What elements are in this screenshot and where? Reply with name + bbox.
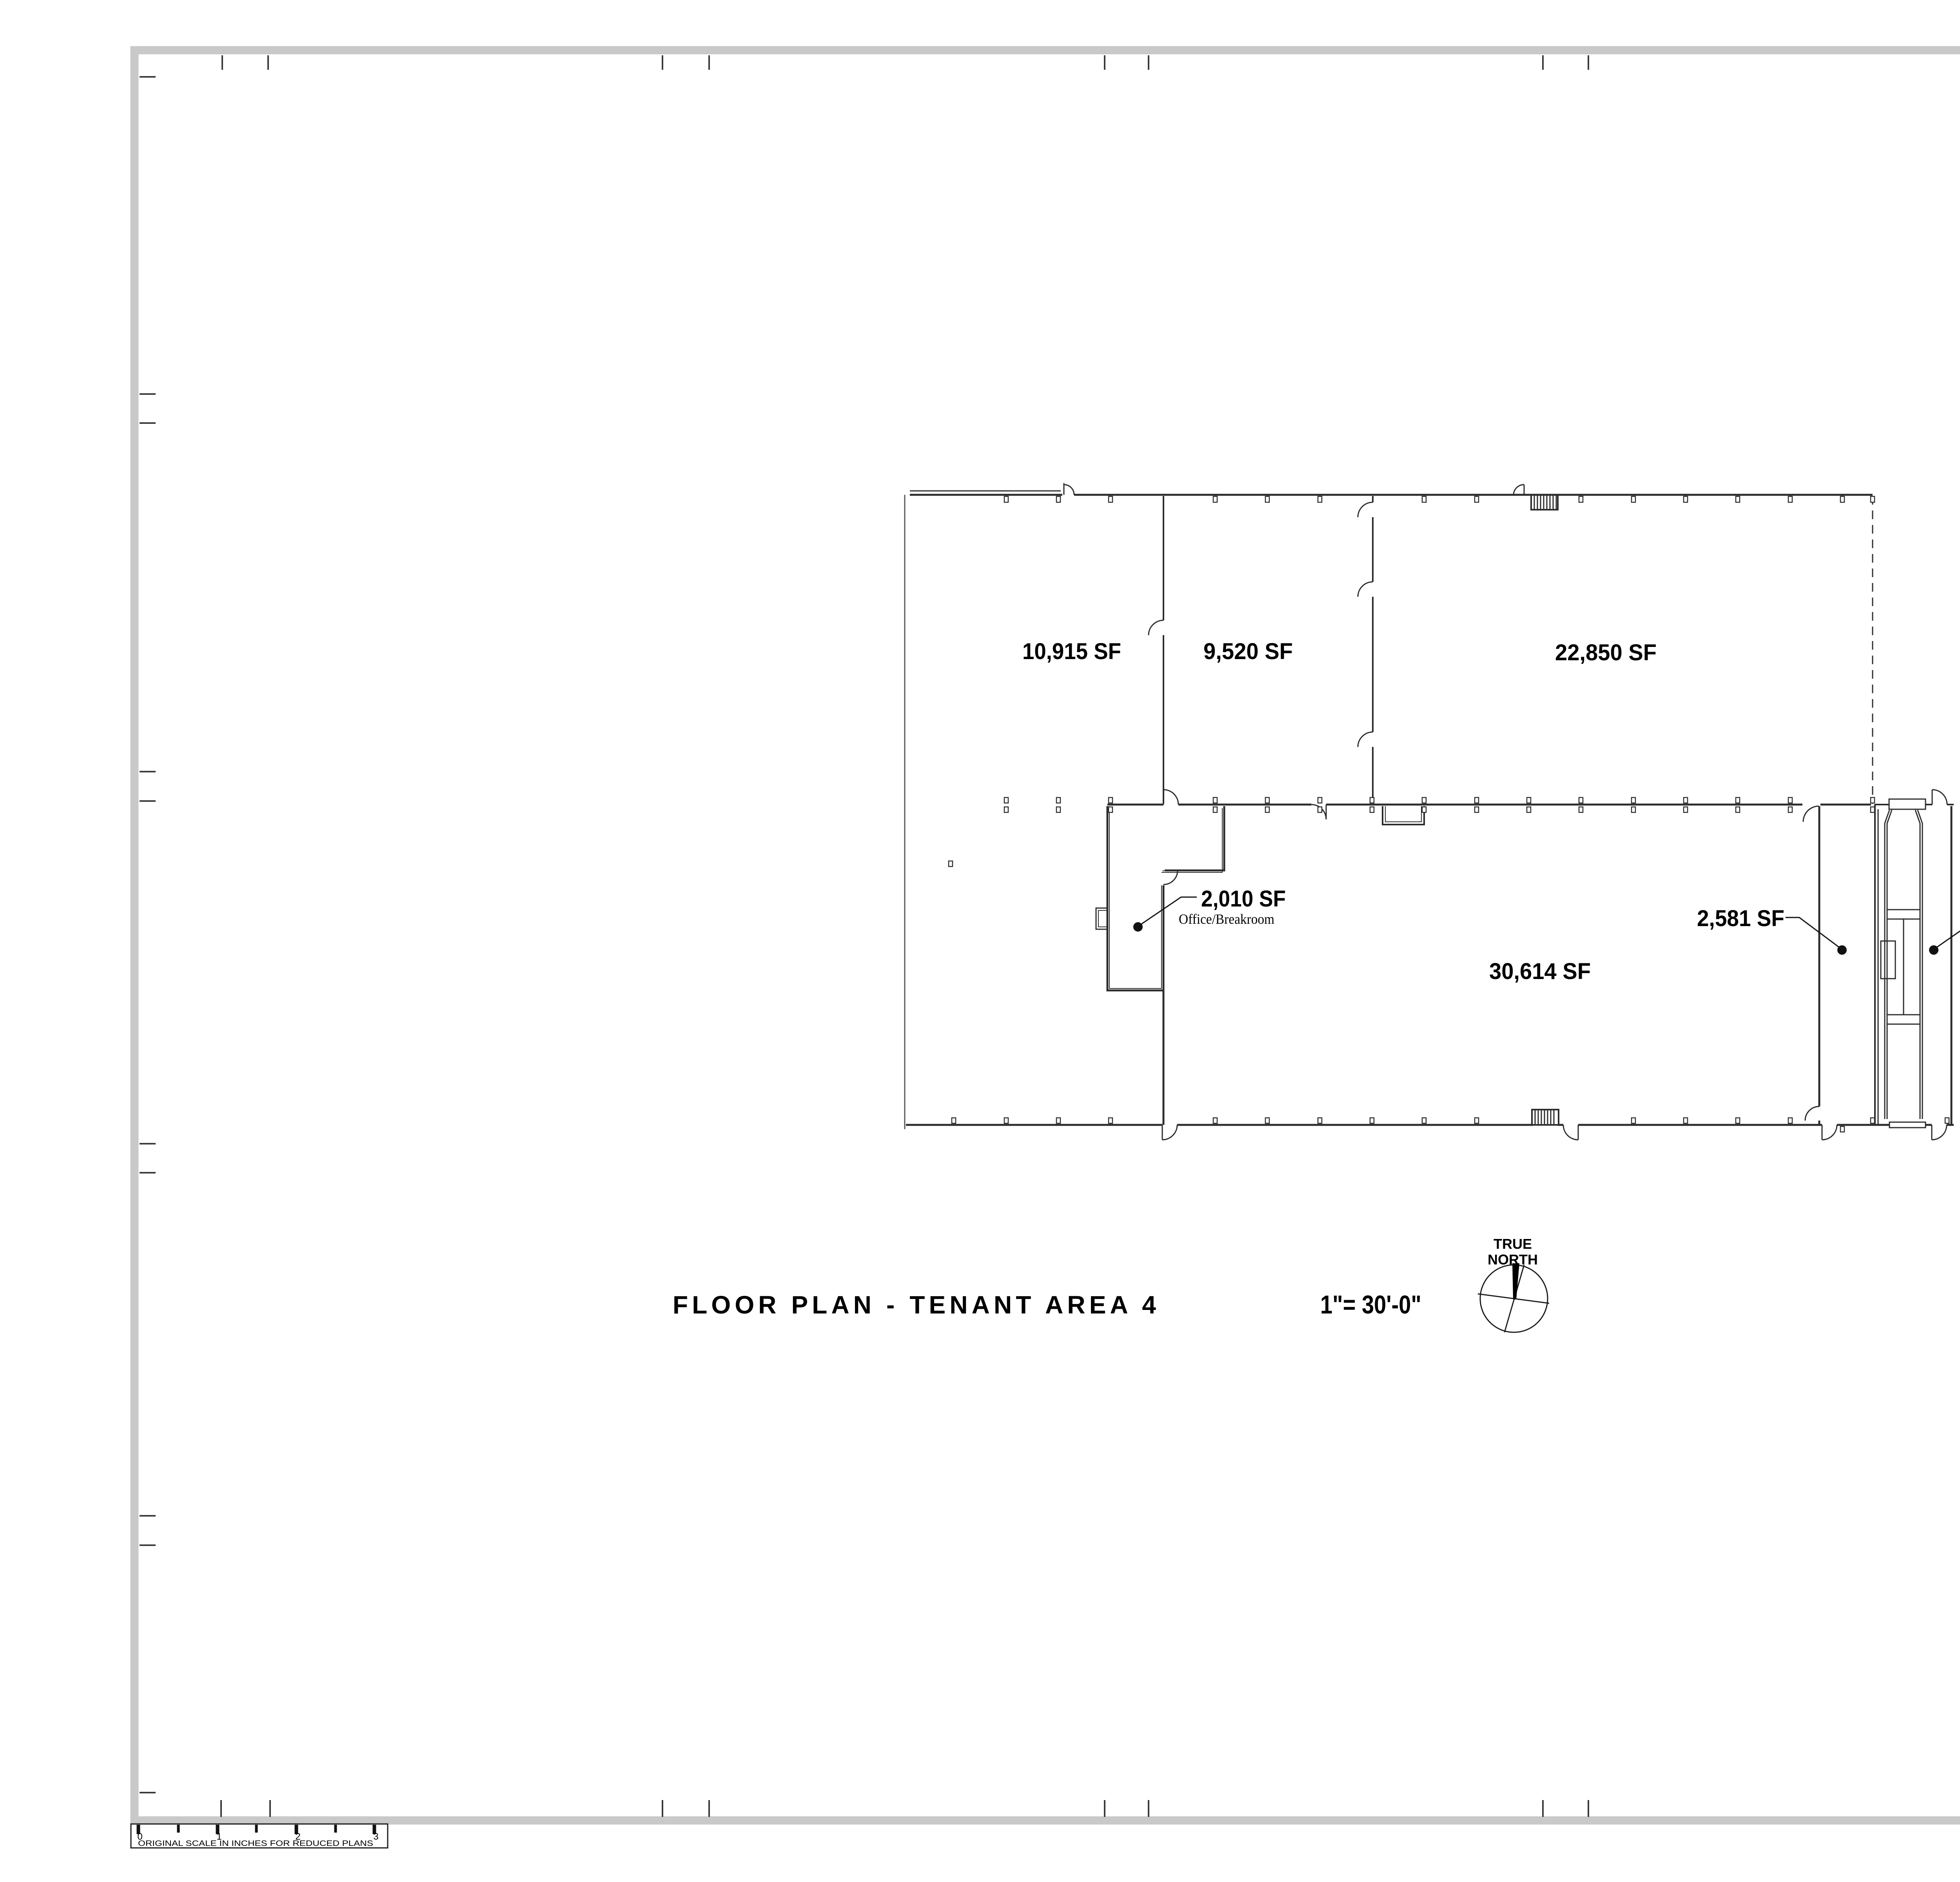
svg-text:2,010 SF: 2,010 SF [1201,886,1286,912]
svg-text:30,614 SF: 30,614 SF [1489,959,1591,984]
svg-text:FLOOR PLAN - TENANT AREA 4: FLOOR PLAN - TENANT AREA 4 [673,1291,1156,1319]
svg-text:2,581 SF: 2,581 SF [1697,906,1784,931]
svg-text:ORIGINAL SCALE IN INCHES FOR R: ORIGINAL SCALE IN INCHES FOR REDUCED PLA… [138,1839,373,1848]
svg-text:3: 3 [373,1831,378,1842]
svg-text:Office/Breakroom: Office/Breakroom [1179,911,1274,927]
svg-text:NORTH: NORTH [1488,1252,1538,1268]
svg-text:9,520 SF: 9,520 SF [1203,639,1293,664]
svg-text:10,915 SF: 10,915 SF [1022,639,1121,664]
svg-text:1"= 30'-0": 1"= 30'-0" [1320,1290,1421,1319]
svg-text:TRUE: TRUE [1494,1236,1532,1252]
svg-text:22,850 SF: 22,850 SF [1555,640,1657,665]
